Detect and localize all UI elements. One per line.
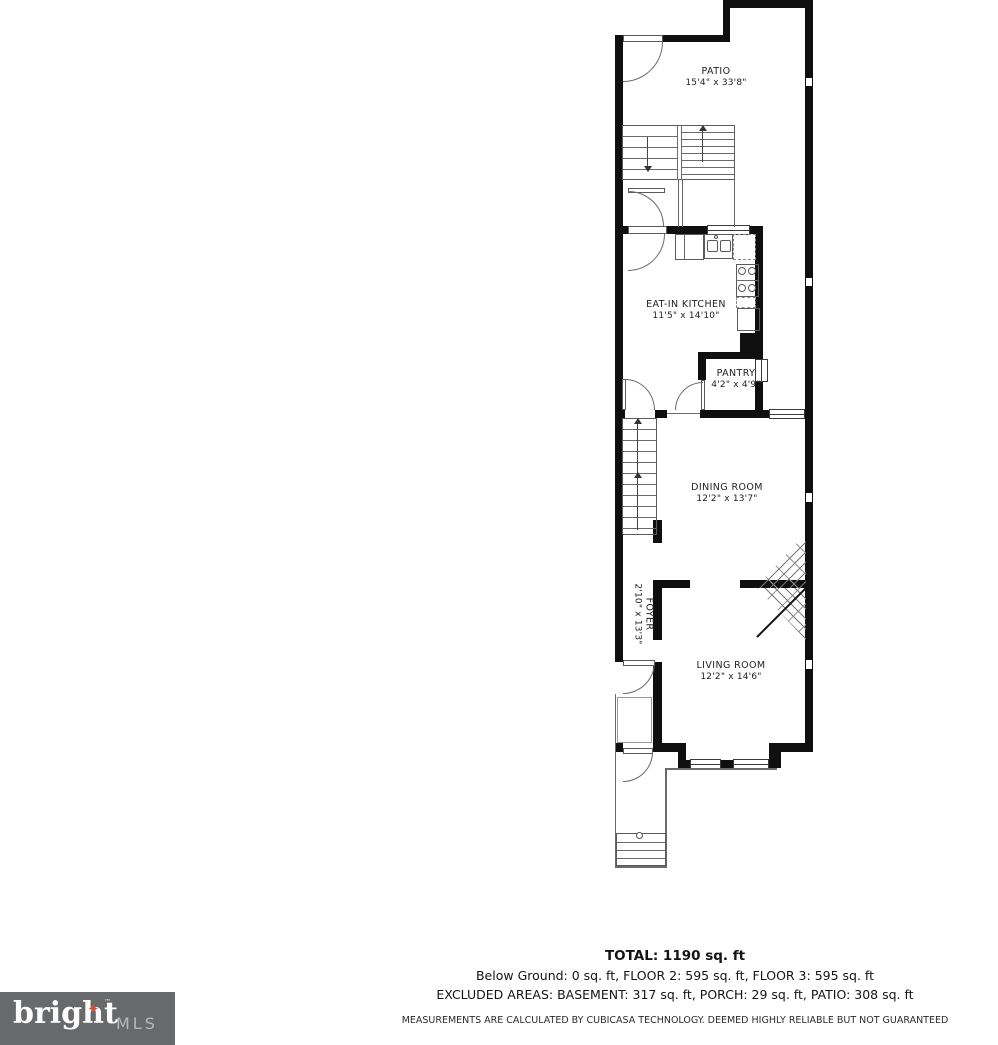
window-dining	[769, 409, 805, 419]
wall-kitchen-top-b	[667, 226, 709, 234]
room-label-kitchen: EAT-IN KITCHEN 11'5" x 14'10"	[646, 299, 726, 322]
wall-mid-d	[804, 410, 813, 418]
stair-tread	[623, 136, 677, 137]
porch-step-tread	[617, 858, 665, 859]
room-name: LIVING ROOM	[696, 660, 765, 672]
disclaimer-text: MEASUREMENTS ARE CALCULATED BY CUBICASA …	[350, 1015, 998, 1026]
wall-kitchen-top-a	[615, 226, 628, 234]
stair-tread	[623, 147, 677, 148]
logo-trademark: ™	[104, 998, 111, 1006]
upper-cabinet	[733, 234, 756, 260]
sink-basin	[720, 240, 731, 252]
wall-divider-a	[653, 580, 690, 588]
stair-tread	[623, 451, 656, 452]
door-leaf-kitchen	[628, 226, 667, 234]
wall-mid-a	[615, 410, 625, 418]
room-label-foyer: FOYER 2'10" x 13'3"	[632, 583, 655, 644]
door-arc-landing	[628, 191, 664, 226]
logo-star-icon: ✦	[87, 1000, 100, 1018]
stair-arrow-line	[647, 137, 648, 167]
landing-line	[682, 180, 683, 227]
room-name: PATIO	[685, 66, 746, 78]
stair-tread	[623, 484, 656, 485]
landing-line	[678, 180, 679, 227]
wall-patio-topleft-b	[663, 35, 730, 42]
stair-tread	[682, 153, 734, 154]
room-name: DINING ROOM	[691, 482, 763, 494]
floor-areas-text: Below Ground: 0 sq. ft, FLOOR 2: 595 sq.…	[350, 968, 998, 983]
door-arc-kitchen-hall	[625, 379, 655, 410]
porch-edge-line	[667, 768, 777, 770]
stair-tread	[682, 146, 734, 147]
brightmls-logo: bright ✦ ™ MLS	[0, 992, 175, 1045]
stair-tread	[623, 506, 656, 507]
stair-arrow-down	[644, 166, 652, 172]
total-area-text: TOTAL: 1190 sq. ft	[350, 948, 998, 964]
wall-front-a	[615, 743, 623, 752]
excluded-areas-text: EXCLUDED AREAS: BASEMENT: 317 sq. ft, PO…	[350, 987, 998, 1002]
wall-right	[805, 0, 813, 752]
stove-burner	[738, 284, 746, 292]
stair-arrow-up	[699, 125, 707, 131]
wall-notch	[806, 278, 812, 286]
stair-tread	[682, 160, 734, 161]
stair-divider	[677, 125, 678, 180]
stair-tread	[623, 158, 677, 159]
wall-mid-c	[700, 410, 770, 418]
counter-dashed	[736, 297, 756, 308]
entry-alcove	[617, 697, 652, 743]
room-name: PANTRY	[711, 368, 760, 380]
room-label-patio: PATIO 15'4" x 33'8"	[685, 66, 746, 89]
stair-tread	[682, 139, 734, 140]
kitchen-counter	[675, 234, 704, 260]
door-arc-pantry	[675, 382, 703, 410]
logo-brand-text: bright	[13, 996, 118, 1031]
sink-faucet	[714, 235, 718, 239]
stair-tread	[623, 495, 656, 496]
wall-notch	[806, 493, 812, 502]
wall-pantry-left	[698, 352, 706, 380]
wall-bay-step-left	[678, 743, 686, 768]
porch-newel	[636, 832, 643, 839]
room-label-dining: DINING ROOM 12'2" x 13'7"	[691, 482, 763, 505]
winder-stair-upper	[755, 533, 806, 588]
porch-wall-bottom	[615, 866, 667, 868]
stair-tread	[623, 528, 656, 529]
area-summary: TOTAL: 1190 sq. ft Below Ground: 0 sq. f…	[350, 948, 998, 1026]
stove-burner	[748, 267, 756, 275]
room-dims: 12'2" x 14'6"	[696, 672, 765, 684]
wall-foyer-right-c	[653, 662, 662, 743]
stair-tread	[682, 174, 734, 175]
stair-tread	[623, 462, 656, 463]
stove-burner	[748, 284, 756, 292]
room-dims: 12'2" x 13'7"	[691, 494, 763, 506]
wall-bay-post	[720, 760, 733, 768]
door-leaf-patio	[623, 35, 663, 42]
room-dims: 11'5" x 14'10"	[646, 311, 726, 323]
door-arc-front	[623, 662, 655, 694]
logo-mls-text: MLS	[116, 1014, 158, 1033]
wall-front-c	[781, 743, 813, 752]
stove-divider	[736, 280, 759, 281]
stair-arrow-up	[634, 418, 642, 424]
wall-notch	[806, 78, 812, 86]
kitchen-cabinet	[737, 308, 760, 331]
stair-arrow-line	[702, 131, 703, 162]
door-arc-patio	[623, 42, 663, 82]
wall-pantry-top	[698, 352, 763, 359]
wall-notch	[806, 660, 812, 669]
room-dims: 15'4" x 33'8"	[685, 78, 746, 90]
porch-step-tread	[617, 842, 665, 843]
wall-mid-b	[655, 410, 667, 418]
stair-tread	[623, 517, 656, 518]
room-label-living: LIVING ROOM 12'2" x 14'6"	[696, 660, 765, 683]
room-dims: 2'10" x 13'3"	[632, 583, 644, 644]
stair-tread	[623, 429, 656, 430]
room-dims: 4'2" x 4'9"	[711, 380, 760, 392]
door-arc-porch	[623, 752, 653, 782]
stair-tread	[682, 132, 734, 133]
stair-tread	[682, 167, 734, 168]
sink-basin	[707, 240, 718, 252]
landing-line	[734, 180, 735, 227]
room-name: EAT-IN KITCHEN	[646, 299, 726, 311]
room-label-pantry: PANTRY 4'2" x 4'9"	[711, 368, 760, 391]
porch-step-tread	[617, 850, 665, 851]
wall-top	[723, 0, 813, 8]
counter-divider	[684, 234, 685, 260]
stair-tread	[623, 440, 656, 441]
floorplan-page: PATIO 15'4" x 33'8" EAT-IN KITCHEN 11'5"…	[0, 0, 998, 1045]
threshold-line	[667, 413, 700, 414]
wall-bay-step-right	[769, 743, 781, 768]
door-arc-kitchen	[628, 234, 665, 271]
room-name: FOYER	[643, 583, 655, 644]
stove-burner	[738, 267, 746, 275]
stair-arrow-up	[634, 472, 642, 478]
